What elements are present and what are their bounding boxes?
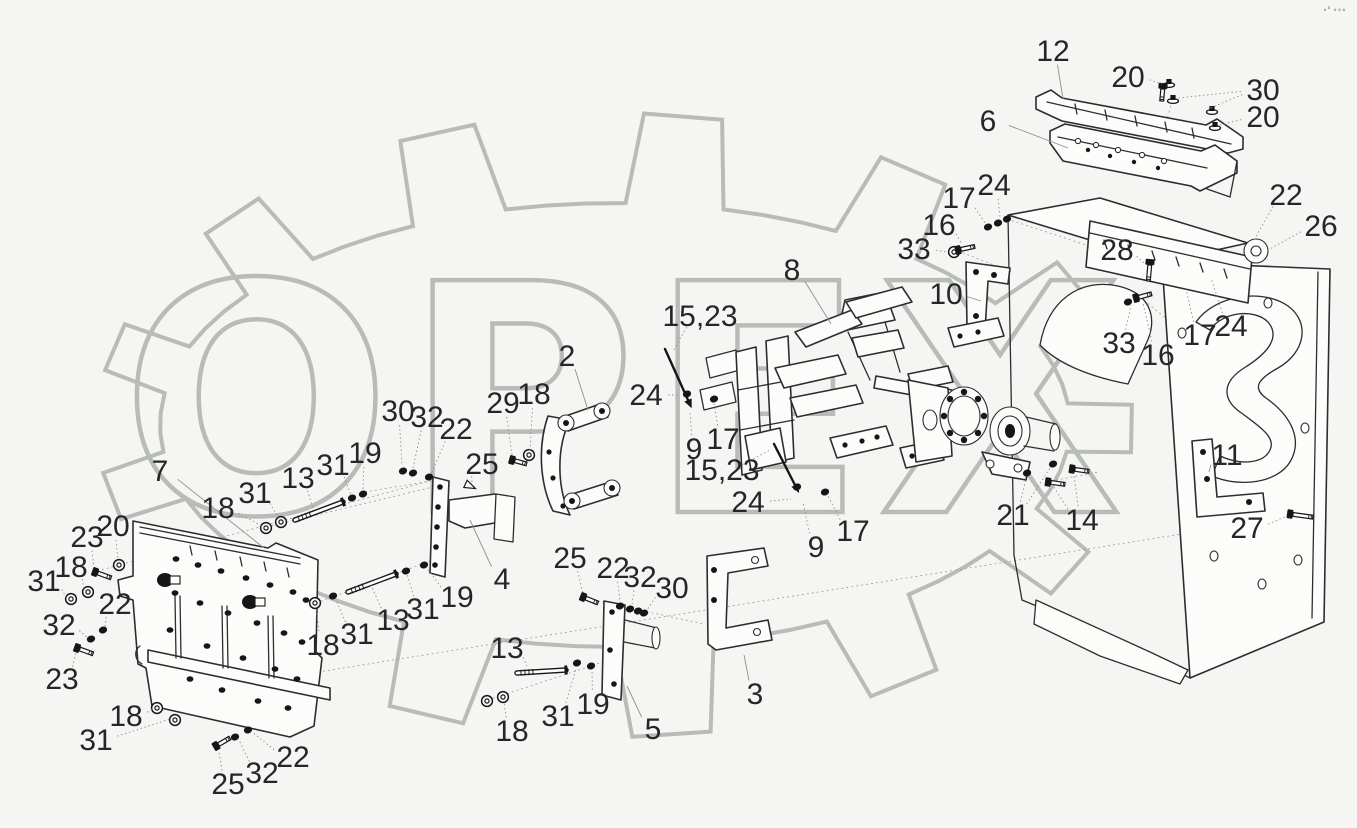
blade-hole <box>859 438 864 443</box>
washer <box>152 703 163 714</box>
side-plate-slot <box>923 410 937 430</box>
nut-dot <box>586 661 596 670</box>
panel-hole <box>1294 555 1302 565</box>
panel-bolt-head <box>267 582 274 588</box>
washer <box>524 450 535 461</box>
part-label-30: 30 <box>655 572 688 605</box>
part-label-10: 10 <box>929 278 962 311</box>
part-label-27: 27 <box>1230 512 1263 545</box>
bolt-shank <box>585 596 598 604</box>
strip-rivet <box>1086 148 1090 152</box>
nut-dot <box>625 604 635 613</box>
leader-line-3 <box>744 655 749 681</box>
bracket-11-hole <box>1204 476 1210 482</box>
part-label-31: 31 <box>238 477 271 510</box>
bracket-11-hole <box>1246 499 1252 505</box>
panel-bolt-head <box>173 556 180 562</box>
part-label-18: 18 <box>517 378 550 411</box>
part-label-14: 14 <box>1065 504 1098 537</box>
panel-bolt-head <box>187 676 194 682</box>
part-label-18: 18 <box>495 715 528 748</box>
blade-hole <box>975 329 980 334</box>
shaft-end <box>1050 424 1060 450</box>
panel-hole <box>1264 298 1272 308</box>
flange-nut <box>1166 79 1171 84</box>
part-label-25: 25 <box>465 448 498 481</box>
part-label-17: 17 <box>706 423 739 456</box>
tube-end <box>652 627 660 649</box>
part-label-24: 24 <box>1214 310 1247 343</box>
part-label-22: 22 <box>276 741 309 774</box>
strip-hole <box>1075 138 1080 143</box>
flange-nut <box>1212 122 1217 127</box>
part-label-11: 11 <box>1211 439 1242 472</box>
panel-7 <box>118 521 330 737</box>
nut-dot <box>230 732 240 741</box>
panel-bolt-head <box>204 643 211 649</box>
part-label-23: 23 <box>70 521 103 554</box>
washer <box>170 715 181 726</box>
exploded-parts-diagram: ОРЕХ ∘° ∘∘∘ <box>0 0 1357 828</box>
panel-bolt-head <box>255 698 262 704</box>
part-label-32: 32 <box>623 561 656 594</box>
blade-hole <box>909 453 914 458</box>
part-label-25: 25 <box>553 542 586 575</box>
part-label-24: 24 <box>977 169 1010 202</box>
flange-nut <box>1209 106 1214 111</box>
leader-line-22 <box>252 732 274 750</box>
part-label-31: 31 <box>316 449 349 482</box>
blade-hole <box>842 442 847 447</box>
bracket-10-hole <box>991 272 997 278</box>
part-label-31: 31 <box>340 618 373 651</box>
bracket-11-hole <box>1200 449 1206 455</box>
part-label-29: 29 <box>486 387 519 420</box>
panel-bolt-head <box>219 687 226 693</box>
part-label-18: 18 <box>109 700 142 733</box>
part-label-12: 12 <box>1036 35 1069 68</box>
panel-bolt-head <box>254 620 261 626</box>
bracket-4-plate <box>494 494 515 542</box>
strip-hole <box>1161 158 1166 163</box>
part-label-22: 22 <box>439 413 472 446</box>
nut-dot <box>98 625 108 634</box>
plate-hole <box>546 449 551 454</box>
bracket-3 <box>707 548 772 650</box>
flange-nut <box>1170 95 1175 100</box>
part-label-33: 33 <box>1102 327 1135 360</box>
part-label-22: 22 <box>98 588 131 621</box>
part-label-13: 13 <box>490 632 523 665</box>
part-label-7: 7 <box>152 455 169 488</box>
leader-line-13 <box>523 657 527 666</box>
leader-line-30 <box>1178 91 1241 98</box>
washer <box>261 523 272 534</box>
part-label-18: 18 <box>306 629 339 662</box>
blade-hole <box>874 434 879 439</box>
part-label-17: 17 <box>836 515 869 548</box>
part-label-2: 2 <box>559 340 576 373</box>
panel-hole <box>1301 423 1309 433</box>
panel-bolt-head <box>299 639 306 645</box>
part-label-23: 23 <box>45 663 78 696</box>
part-label-19: 19 <box>348 437 381 470</box>
part-label-3: 3 <box>747 678 764 711</box>
part-label-17: 17 <box>1183 319 1216 352</box>
part-label-4: 4 <box>494 563 511 596</box>
washer <box>482 696 493 707</box>
panel-hole <box>1258 579 1266 589</box>
part-label-32: 32 <box>245 757 278 790</box>
panel-bolt-head <box>197 600 204 606</box>
blade-hole <box>957 333 962 338</box>
part-label-13: 13 <box>281 462 314 495</box>
strip-rivet <box>1156 166 1160 170</box>
washer <box>114 560 125 571</box>
panel-bolt-head <box>243 575 250 581</box>
leader-line-18 <box>147 709 152 712</box>
part-label-25: 25 <box>211 768 244 801</box>
bolt-head <box>1158 83 1167 90</box>
carriage-bolt-shank <box>170 576 180 584</box>
corner-mark: ∘° ∘∘∘ <box>1323 6 1346 14</box>
bracket-5 <box>602 601 660 700</box>
part-label-24: 24 <box>629 379 662 412</box>
leader-line-20 <box>116 540 118 561</box>
strip-hole <box>1093 142 1098 147</box>
part-label-28: 28 <box>1100 234 1133 267</box>
part-label-15,23: 15,23 <box>662 300 737 333</box>
carriage-bolt-shank <box>255 598 265 606</box>
bearing-bore <box>1005 424 1015 438</box>
nut-dot <box>572 658 582 667</box>
bolt <box>91 567 113 582</box>
part-label-15,23: 15,23 <box>684 454 759 487</box>
part-label-5: 5 <box>645 713 662 746</box>
parts-diagram-page: ОРЕХ ∘° ∘∘∘ <box>0 0 1357 828</box>
bolt-shank <box>1146 265 1151 281</box>
panel-bolt-head <box>172 590 179 596</box>
housing-bottom-skid <box>1034 600 1188 684</box>
part-label-20: 20 <box>1246 101 1279 134</box>
washer <box>498 692 509 703</box>
part-label-26: 26 <box>1304 210 1337 243</box>
strip-hole <box>1115 147 1120 152</box>
bolt <box>1157 83 1168 102</box>
plate-hole <box>560 503 565 508</box>
panel-bolt-head <box>240 655 247 661</box>
bracket-10-hole <box>973 269 979 275</box>
part-label-19: 19 <box>576 688 609 721</box>
part-label-31: 31 <box>541 700 574 733</box>
bracket-10-hole <box>973 313 979 319</box>
part-label-21: 21 <box>996 499 1029 532</box>
foot-hole <box>1014 464 1022 472</box>
part-label-32: 32 <box>42 609 75 642</box>
plate-hole <box>550 475 555 480</box>
part-label-31: 31 <box>79 724 112 757</box>
panel-hole <box>1210 551 1218 561</box>
part-label-6: 6 <box>980 105 997 138</box>
bolt <box>73 643 95 658</box>
foot-hole <box>986 460 994 468</box>
strip-hole <box>1139 152 1144 157</box>
leader-line-26 <box>1268 232 1301 250</box>
panel-bolt-head <box>167 627 174 633</box>
leader-line-32 <box>79 631 87 637</box>
washer <box>276 517 287 528</box>
panel-bolt-head <box>272 666 279 672</box>
part-label-31: 31 <box>406 593 439 626</box>
bolt <box>579 592 600 607</box>
part-label-20: 20 <box>1111 61 1144 94</box>
bolt <box>211 734 232 751</box>
panel-bolt-head <box>195 562 202 568</box>
panel-bolt-head <box>225 610 232 616</box>
washer <box>66 594 77 605</box>
bolt-head <box>1145 259 1154 266</box>
part-label-18: 18 <box>201 492 234 525</box>
pivot-boss-26-bore <box>1251 246 1261 256</box>
part-label-33: 33 <box>897 233 930 266</box>
leader-line-12 <box>1057 65 1063 99</box>
strip-rivet <box>1108 154 1112 158</box>
leader-line-30 <box>647 597 655 610</box>
panel-7-plate <box>118 521 322 737</box>
panel-bolt-head <box>281 630 288 636</box>
part-label-22: 22 <box>1269 179 1302 212</box>
part-label-8: 8 <box>784 254 801 287</box>
panel-bolt-head <box>218 568 225 574</box>
part-label-9: 9 <box>808 531 825 564</box>
part-label-16: 16 <box>1141 339 1174 372</box>
leader-line-31 <box>62 589 66 597</box>
rotor-hub-inner <box>948 396 980 436</box>
panel-bolt-head <box>290 589 297 595</box>
panel-bolt-head <box>285 705 292 711</box>
part-label-13: 13 <box>376 604 409 637</box>
part-label-24: 24 <box>731 486 764 519</box>
part-label-31: 31 <box>27 565 60 598</box>
washer <box>310 598 321 609</box>
panel-bolt-head <box>303 597 310 603</box>
part-label-19: 19 <box>440 581 473 614</box>
strip-rivet <box>1132 160 1136 164</box>
bolt-shank <box>218 736 231 746</box>
nut-dot <box>86 634 96 643</box>
panel-bolt-head <box>294 676 301 682</box>
stud-head <box>566 666 567 675</box>
